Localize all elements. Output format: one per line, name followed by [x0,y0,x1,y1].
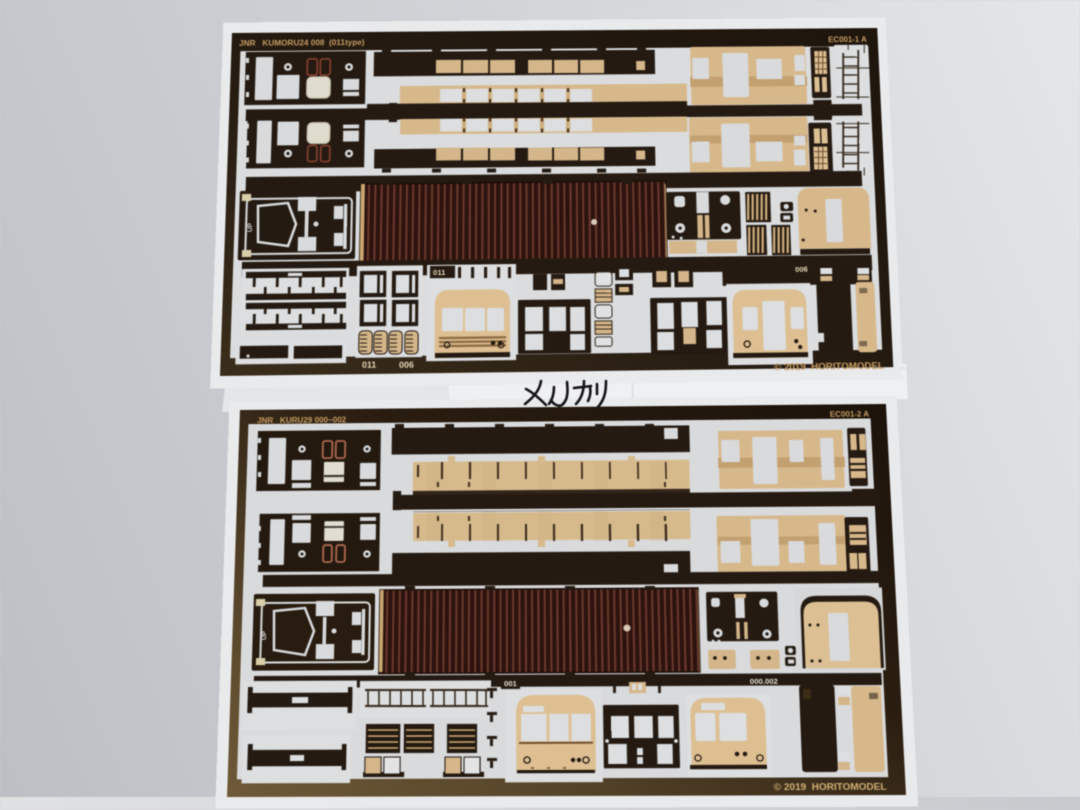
svg-text:011: 011 [433,268,445,277]
svg-text:006: 006 [795,265,808,274]
svg-text:JNR KUMORU24 008 (011type): JNR KUMORU24 008 (011type) [239,38,365,48]
svg-text:UP: UP [261,631,269,640]
svg-text:EC001-1 A: EC001-1 A [828,35,867,44]
svg-text:UP: UP [247,222,255,232]
svg-text:© 2019 HORITOMODEL: © 2019 HORITOMODEL [774,360,885,372]
svg-text:JNR KURU29 000−002: JNR KURU29 000−002 [257,415,346,425]
svg-text:011: 011 [362,359,377,370]
svg-text:000.002: 000.002 [750,678,778,686]
svg-text:006: 006 [399,359,414,370]
svg-text:EC001-2 A: EC001-2 A [830,410,870,420]
svg-text:© 2019 HORITOMODEL: © 2019 HORITOMODEL [774,781,888,793]
svg-text:001: 001 [504,681,517,689]
